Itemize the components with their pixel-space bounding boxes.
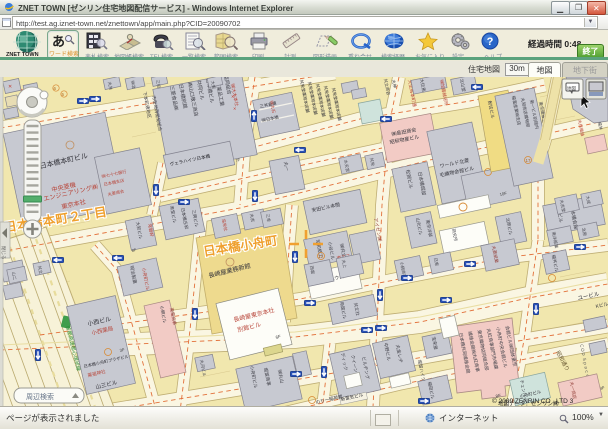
- svg-text:周辺検索: 周辺検索: [26, 392, 54, 401]
- svg-text:✕: ✕: [8, 84, 12, 90]
- svg-text:?: ?: [487, 36, 494, 48]
- svg-text:12: 12: [318, 254, 324, 259]
- svg-text:地図: 地図: [567, 85, 576, 92]
- svg-text:✕: ✕: [233, 106, 236, 111]
- svg-text:✕: ✕: [231, 94, 234, 99]
- svg-text:17: 17: [526, 158, 532, 163]
